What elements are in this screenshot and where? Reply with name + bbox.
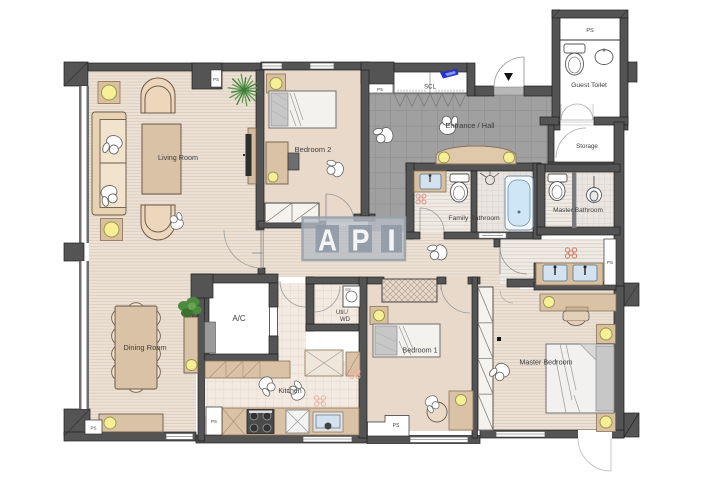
svg-text:PS: PS xyxy=(211,419,217,424)
svg-text:PS: PS xyxy=(377,87,383,92)
svg-text:PS: PS xyxy=(586,28,594,34)
svg-text:SCL: SCL xyxy=(424,85,436,91)
svg-text:WD: WD xyxy=(340,317,351,323)
svg-text:Guest Toilet: Guest Toilet xyxy=(571,82,607,89)
svg-text:PS: PS xyxy=(213,77,219,82)
svg-text:P: P xyxy=(352,223,370,258)
svg-text:A/C: A/C xyxy=(232,314,246,323)
svg-text:Util./: Util./ xyxy=(336,310,348,316)
svg-text:Kitchen: Kitchen xyxy=(278,388,301,395)
svg-text:PS: PS xyxy=(90,426,96,431)
svg-text:PS: PS xyxy=(607,260,613,265)
svg-text:Bedroom 2: Bedroom 2 xyxy=(295,145,332,154)
svg-text:I: I xyxy=(387,223,396,258)
svg-text:Master Bedroom: Master Bedroom xyxy=(519,358,572,367)
svg-text:A: A xyxy=(318,223,337,258)
svg-text:Entrance / Hall: Entrance / Hall xyxy=(445,121,495,130)
svg-text:PS: PS xyxy=(393,423,400,429)
svg-text:Living Room: Living Room xyxy=(158,153,198,162)
svg-text:Master Bathroom: Master Bathroom xyxy=(553,207,603,214)
svg-text:Family Bathroom: Family Bathroom xyxy=(448,215,500,222)
svg-text:Bedroom 1: Bedroom 1 xyxy=(402,346,437,355)
svg-text:Dining Room: Dining Room xyxy=(123,343,166,352)
svg-text:Storage: Storage xyxy=(576,143,598,150)
